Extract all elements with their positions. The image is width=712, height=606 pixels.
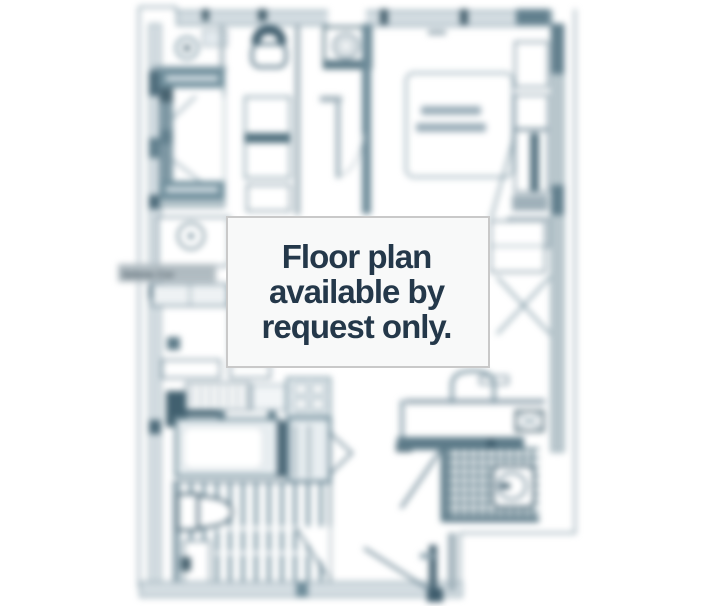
svg-text:Selene Cor: Selene Cor bbox=[122, 270, 174, 281]
